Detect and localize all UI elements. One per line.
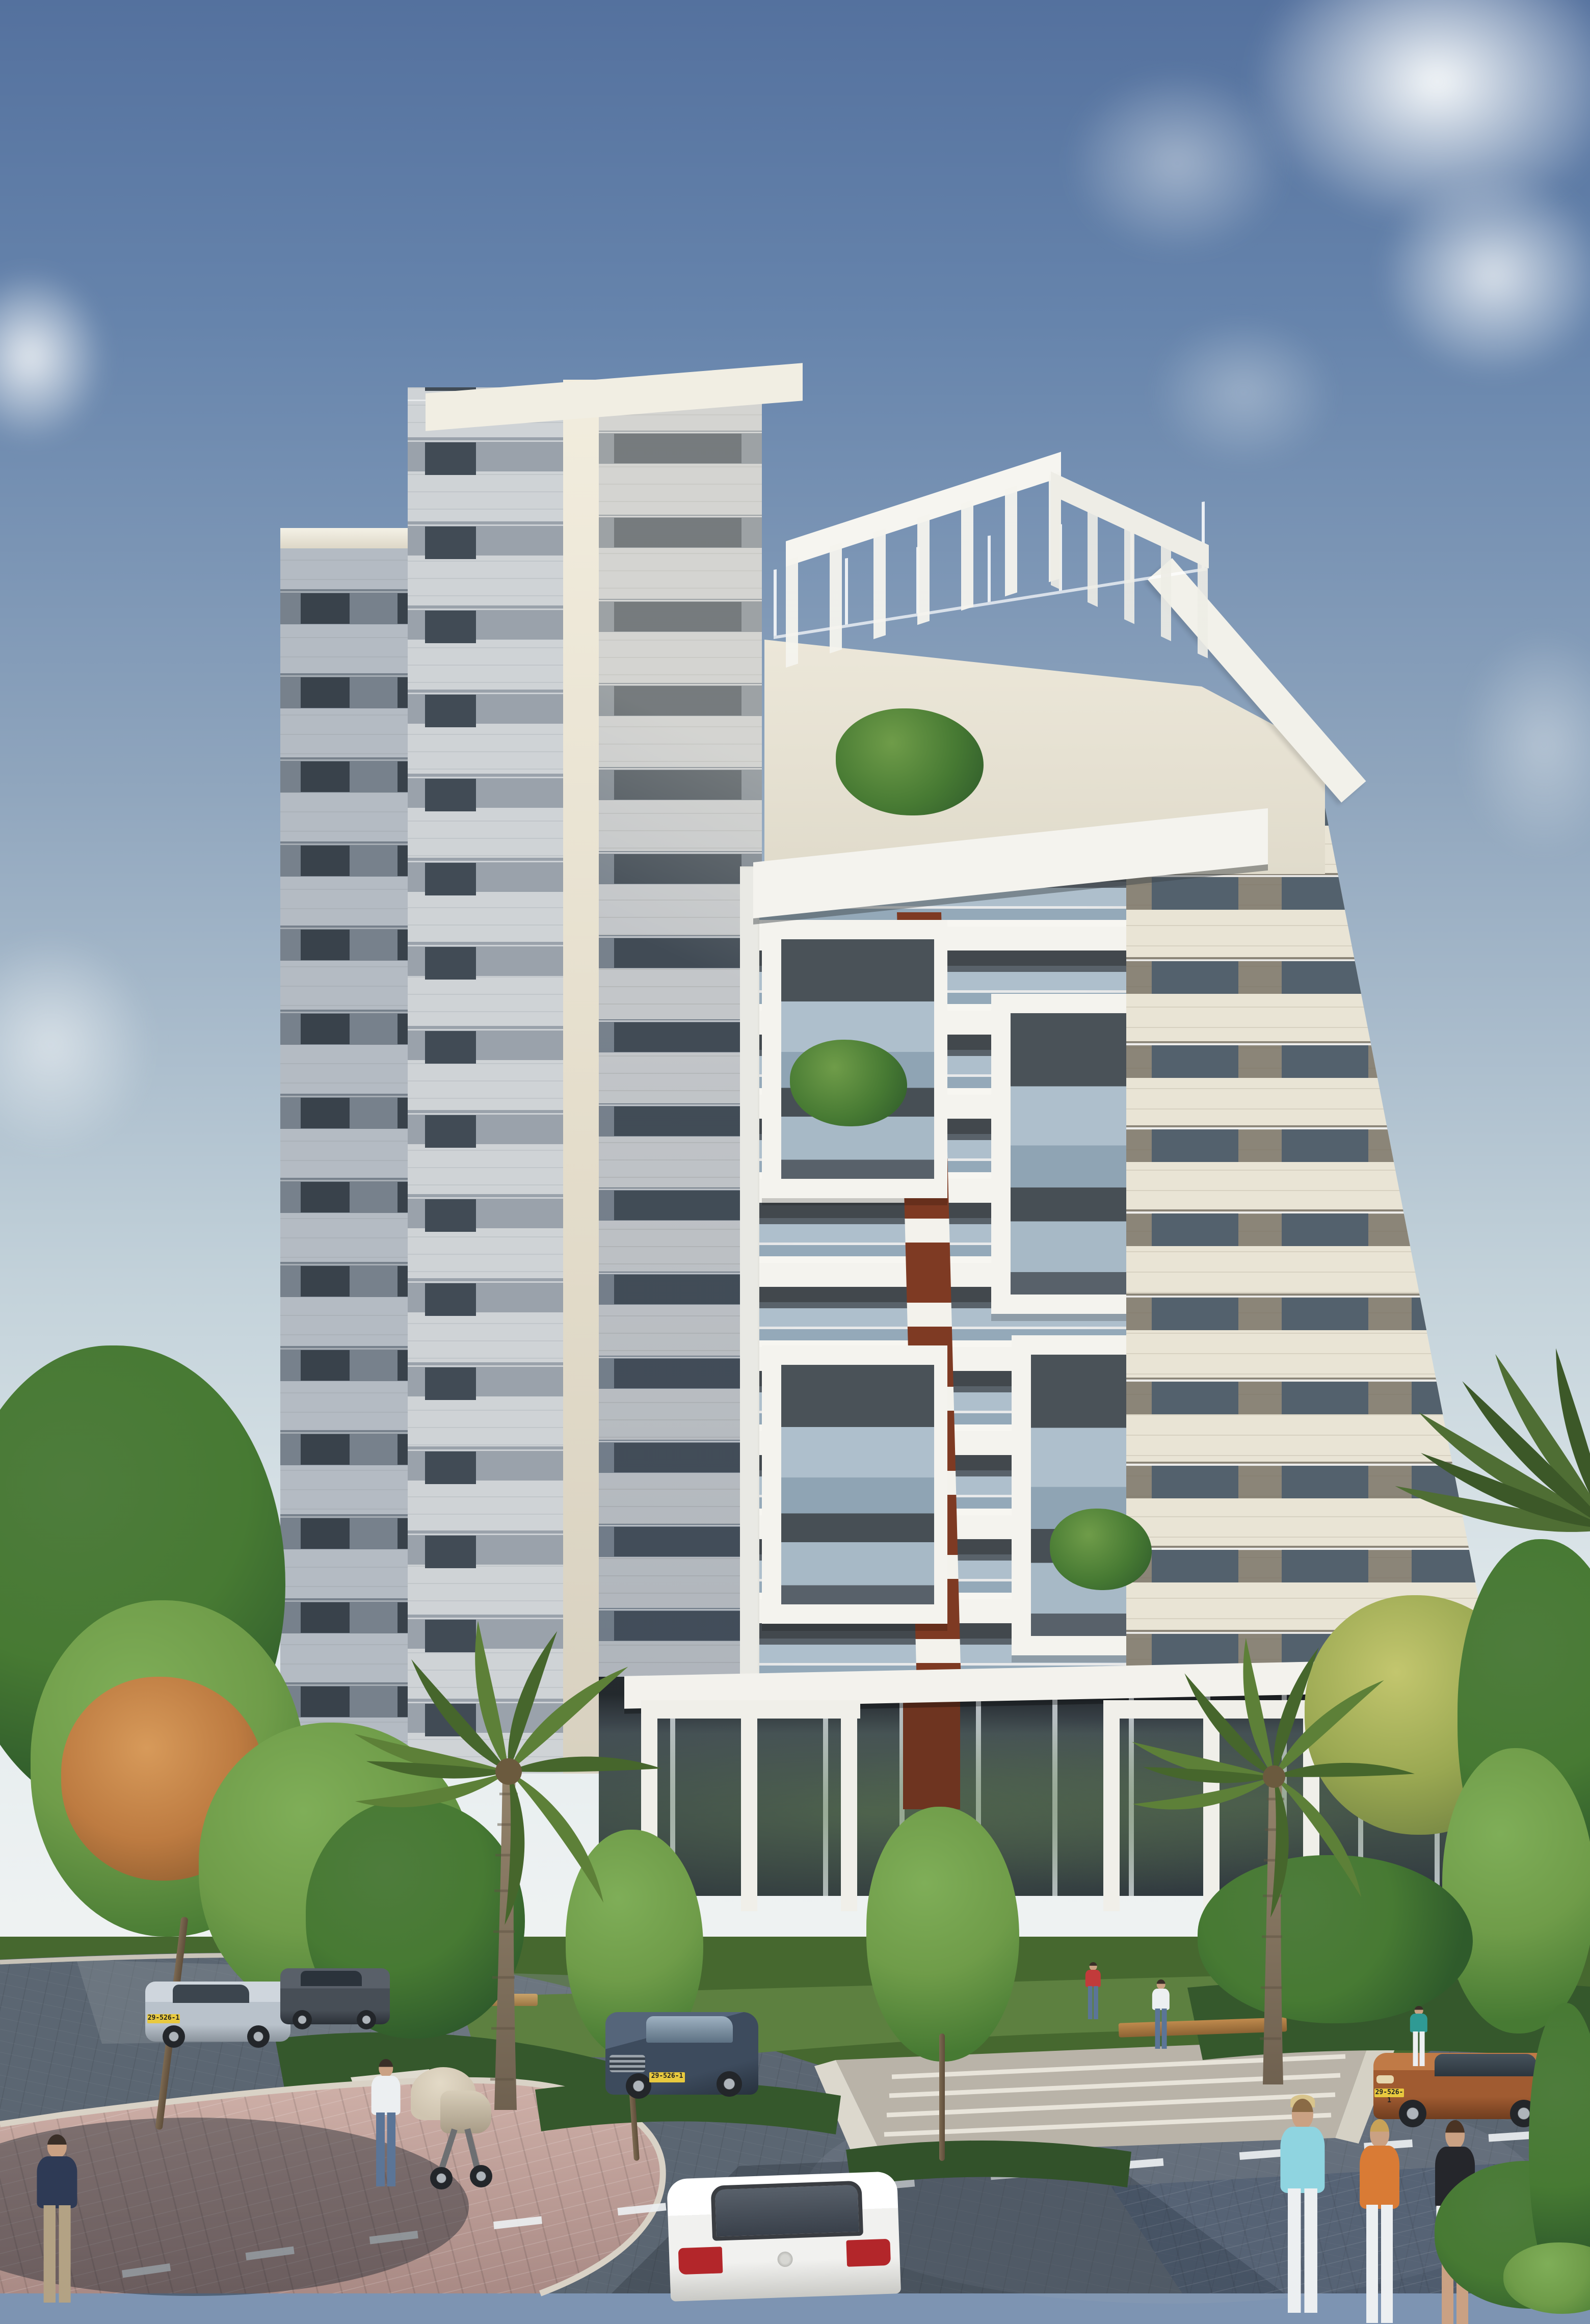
palm-fronds-right-edge (1325, 1417, 1590, 1835)
cloud-wisp-center (1019, 31, 1335, 296)
person-walking-man (26, 2134, 88, 2303)
tower-left-side-face (408, 387, 584, 1774)
person-orange-woman (1349, 2119, 1410, 2323)
car-white-rear (667, 2171, 901, 2302)
car-silver: 29-526-1 (145, 1982, 290, 2042)
car-window (173, 1985, 249, 2003)
car-badge (777, 2251, 793, 2267)
rear-tower-cap (280, 528, 419, 548)
cloud-wisp-mid (1111, 285, 1376, 499)
tree-trunk (939, 2034, 945, 2161)
palm-tree (326, 1621, 734, 2141)
car-taillight (678, 2247, 723, 2275)
tower-left-wing (599, 380, 762, 1774)
license-plate: 29-526-1 (147, 2014, 180, 2023)
car-rear-window (710, 2181, 863, 2241)
tower-sunlit-corner (563, 380, 600, 1774)
person-cap-man (1269, 2099, 1336, 2313)
tree (866, 1807, 1019, 2062)
car-taillight (846, 2239, 891, 2267)
balcony-box (762, 1345, 947, 1624)
facade-shadow (599, 380, 762, 1774)
rear-tower (280, 540, 419, 1789)
